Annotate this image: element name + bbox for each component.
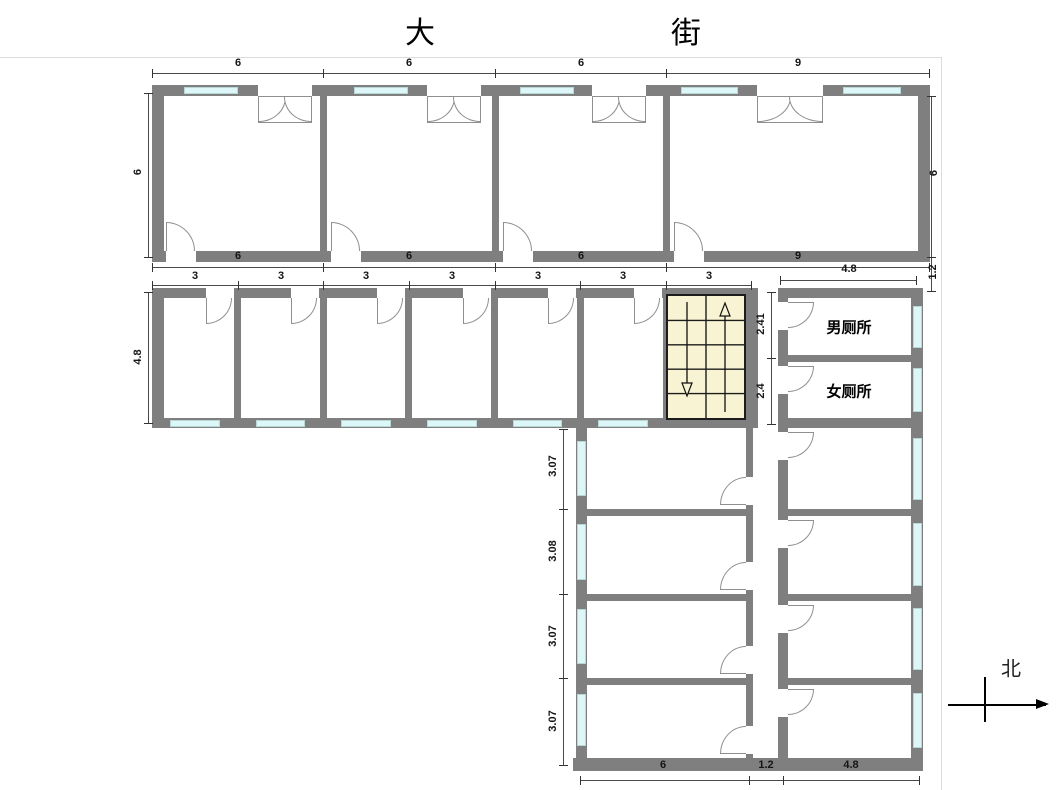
dimension-tick xyxy=(144,423,153,424)
dimension-tick xyxy=(580,281,581,290)
double-door-left-leaf xyxy=(758,97,791,122)
double-door-right-leaf xyxy=(618,97,645,122)
door-swing xyxy=(166,222,195,251)
double-door-left-leaf xyxy=(259,97,286,122)
door-opening xyxy=(746,646,753,674)
dim-street-bottom-room2: 6 xyxy=(406,250,412,262)
wall-segment xyxy=(152,288,164,428)
window xyxy=(681,87,738,94)
dimension-tick xyxy=(927,257,936,258)
dimension-tick xyxy=(144,257,153,258)
wall-segment xyxy=(778,288,923,298)
double-door xyxy=(592,96,646,123)
dim-street-bottom-room1: 6 xyxy=(235,250,241,262)
street-title-right: 街 xyxy=(671,8,701,52)
wall-segment xyxy=(663,96,670,251)
wall-segment xyxy=(491,298,498,418)
door-opening xyxy=(757,85,823,96)
door-opening xyxy=(377,288,405,298)
north-arrow-cross-line xyxy=(984,677,986,722)
wall-segment xyxy=(788,594,911,601)
dim-street-bottom-room3: 6 xyxy=(578,250,584,262)
door-swing xyxy=(788,302,814,328)
dimension-tick xyxy=(495,281,496,290)
door-swing xyxy=(206,298,232,324)
dimension-tick xyxy=(749,776,750,785)
window xyxy=(913,368,922,412)
door-swing xyxy=(291,298,317,324)
dimension-tick xyxy=(323,281,324,290)
double-door xyxy=(427,96,481,123)
dimension-tick xyxy=(409,281,410,290)
dimension-tick xyxy=(666,281,667,290)
north-label: 北 xyxy=(1001,653,1021,682)
dimension-tick xyxy=(238,281,239,290)
door-opening xyxy=(778,432,788,460)
door-swing xyxy=(788,689,814,715)
door-swing xyxy=(463,298,489,324)
dimension-tick xyxy=(767,424,776,425)
street-title-left: 大 xyxy=(405,8,435,52)
dimension-tick xyxy=(559,429,568,430)
window xyxy=(513,420,562,427)
door-swing xyxy=(548,298,574,324)
wall-segment xyxy=(152,85,164,262)
dimension-line xyxy=(152,73,930,74)
wall-segment xyxy=(320,298,327,418)
door-opening xyxy=(634,288,662,298)
dimension-tick xyxy=(559,678,568,679)
wall-segment xyxy=(234,298,241,418)
dim-top-room3: 6 xyxy=(578,57,584,69)
window xyxy=(913,523,922,586)
door-opening xyxy=(778,520,788,548)
door-opening xyxy=(331,251,361,262)
window xyxy=(354,87,408,94)
double-door xyxy=(757,96,823,123)
wall-segment xyxy=(405,298,412,418)
wall-segment xyxy=(492,96,499,251)
dimension-tick xyxy=(780,276,781,285)
window xyxy=(913,306,922,348)
staircase xyxy=(666,294,746,420)
wall-segment xyxy=(152,251,930,262)
double-door-left-leaf xyxy=(593,97,620,122)
door-swing xyxy=(634,298,660,324)
dim-small-room2: 3 xyxy=(278,270,284,282)
dimension-tick xyxy=(559,509,568,510)
dimension-tick xyxy=(580,776,581,785)
dim-bottom-corridor-width: 1.2 xyxy=(758,759,773,771)
dimension-tick xyxy=(559,765,568,766)
door-opening xyxy=(463,288,491,298)
mens-toilet-label: 男厕所 xyxy=(826,317,871,338)
dimension-line xyxy=(931,96,932,292)
dimension-tick xyxy=(323,69,324,78)
window xyxy=(577,694,586,746)
door-opening xyxy=(746,562,753,590)
dimension-tick xyxy=(916,276,917,285)
door-opening xyxy=(206,288,234,298)
dim-mens-toilet-depth: 2.41 xyxy=(755,313,767,334)
window xyxy=(843,87,901,94)
door-swing xyxy=(377,298,403,324)
door-swing xyxy=(720,726,746,754)
door-opening xyxy=(778,302,788,330)
double-door xyxy=(258,96,312,123)
door-opening xyxy=(778,605,788,633)
door-swing xyxy=(788,520,814,546)
dim-street-depth-left: 6 xyxy=(132,169,144,175)
dimension-tick xyxy=(783,776,784,785)
dimension-tick xyxy=(152,263,153,272)
wall-segment xyxy=(746,288,758,428)
door-swing xyxy=(720,477,746,505)
staircase-treads-icon xyxy=(668,296,744,418)
floor-plan: 大 街 男厕所 女厕所 6 6 6 9 6 6 6 9 xyxy=(0,0,1057,790)
dim-top-room2: 6 xyxy=(406,57,412,69)
door-swing xyxy=(674,222,703,251)
dimension-tick xyxy=(152,69,153,78)
wall-segment xyxy=(788,418,911,428)
dim-street-depth-right: 6 xyxy=(928,170,940,176)
dimension-tick xyxy=(559,594,568,595)
dim-top-room4: 9 xyxy=(795,57,801,69)
dim-bottom-left-width: 6 xyxy=(660,759,666,771)
dimension-line xyxy=(148,93,149,258)
dim-street-bottom-room4: 9 xyxy=(795,250,801,262)
dimension-tick xyxy=(751,281,752,290)
dim-small-room5: 3 xyxy=(535,270,541,282)
dimension-tick xyxy=(152,281,153,290)
door-swing xyxy=(788,432,814,458)
dim-lower-room3: 3.07 xyxy=(547,625,559,646)
window xyxy=(577,524,586,580)
window xyxy=(170,420,220,427)
window xyxy=(913,693,922,748)
door-swing xyxy=(720,646,746,674)
page-border-vertical xyxy=(941,57,942,790)
wall-segment xyxy=(788,509,911,516)
dim-small-room1: 3 xyxy=(192,270,198,282)
wall-segment xyxy=(587,678,746,685)
dim-small-room4: 3 xyxy=(449,270,455,282)
door-opening xyxy=(746,477,753,505)
dim-small-room7: 3 xyxy=(706,270,712,282)
double-door-right-leaf xyxy=(789,97,822,122)
dim-lower-room1: 3.07 xyxy=(547,455,559,476)
dimension-tick xyxy=(767,358,776,359)
dimension-line xyxy=(152,267,930,268)
dimension-tick xyxy=(144,292,153,293)
window xyxy=(256,420,305,427)
north-arrow-head-icon xyxy=(1036,699,1049,709)
wall-segment xyxy=(587,594,746,601)
double-door-left-leaf xyxy=(428,97,455,122)
womens-toilet-label: 女厕所 xyxy=(826,381,871,402)
door-swing xyxy=(788,605,814,631)
door-opening xyxy=(592,85,646,96)
dim-corridor-right: 1.2 xyxy=(927,264,939,279)
dimension-tick xyxy=(927,96,936,97)
double-door-right-leaf xyxy=(453,97,480,122)
wall-segment xyxy=(788,678,911,685)
wall-segment xyxy=(577,298,584,418)
window xyxy=(913,608,922,670)
dimension-tick xyxy=(927,291,936,292)
door-opening xyxy=(674,251,704,262)
dimension-tick xyxy=(666,69,667,78)
dimension-line xyxy=(780,280,917,281)
door-opening xyxy=(746,726,753,754)
wall-segment xyxy=(587,509,746,516)
door-opening xyxy=(548,288,576,298)
dimension-tick xyxy=(767,292,776,293)
door-opening xyxy=(427,85,481,96)
wall-segment xyxy=(320,96,327,251)
window xyxy=(427,420,477,427)
stairs-down-arrow-icon xyxy=(682,302,692,396)
dim-lower-room2: 3.08 xyxy=(547,540,559,561)
door-opening xyxy=(166,251,196,262)
double-door-right-leaf xyxy=(284,97,311,122)
dim-lower-room4: 3.07 xyxy=(547,710,559,731)
dimension-line xyxy=(152,285,752,286)
window xyxy=(577,609,586,664)
window xyxy=(520,87,574,94)
dimension-line xyxy=(580,780,920,781)
dimension-line xyxy=(563,429,564,766)
dim-right-wing-width: 4.8 xyxy=(841,263,856,275)
dimension-tick xyxy=(919,776,920,785)
door-opening xyxy=(778,689,788,717)
wall-segment xyxy=(788,355,911,362)
dim-small-rooms-depth: 4.8 xyxy=(132,349,144,364)
door-swing xyxy=(331,222,360,251)
door-opening xyxy=(503,251,533,262)
wall-segment xyxy=(573,758,923,771)
door-swing xyxy=(788,366,814,392)
dimension-tick xyxy=(929,69,930,78)
dimension-tick xyxy=(495,263,496,272)
dimension-tick xyxy=(666,263,667,272)
dim-small-room6: 3 xyxy=(620,270,626,282)
stairs-up-arrow-icon xyxy=(720,303,730,412)
dimension-tick xyxy=(144,93,153,94)
dimension-tick xyxy=(495,69,496,78)
window xyxy=(913,438,922,500)
door-opening xyxy=(778,366,788,394)
window xyxy=(577,441,586,496)
window xyxy=(598,420,648,427)
window xyxy=(184,87,238,94)
door-swing xyxy=(720,562,746,590)
door-opening xyxy=(291,288,319,298)
dim-small-room3: 3 xyxy=(363,270,369,282)
dim-bottom-right-width: 4.8 xyxy=(843,759,858,771)
window xyxy=(341,420,391,427)
door-opening xyxy=(258,85,312,96)
dimension-tick xyxy=(323,263,324,272)
dimension-line xyxy=(148,292,149,424)
dim-top-room1: 6 xyxy=(235,57,241,69)
north-arrow-line xyxy=(948,704,1046,706)
dim-womens-toilet-depth: 2.4 xyxy=(755,383,767,398)
door-swing xyxy=(503,222,532,251)
